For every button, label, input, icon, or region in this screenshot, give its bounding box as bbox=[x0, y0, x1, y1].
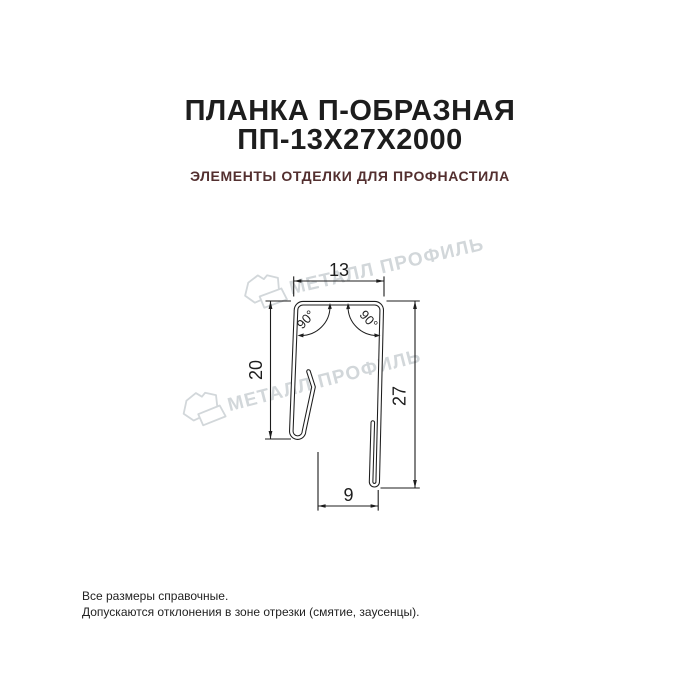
dimension-label-top-width: 13 bbox=[329, 260, 349, 280]
arc-arrow-side bbox=[298, 333, 304, 337]
watermark-top: МЕТАЛЛ ПРОФИЛЬ bbox=[241, 224, 486, 311]
angle-annotation-right: 90° bbox=[346, 303, 381, 337]
dimension-label-right-height: 27 bbox=[390, 386, 410, 406]
footer-notes: Все размеры справочные. Допускаются откл… bbox=[82, 588, 419, 620]
watermark-middle: МЕТАЛЛ ПРОФИЛЬ bbox=[179, 336, 424, 429]
page: ПЛАНКА П-ОБРАЗНАЯ ПП-13Х27Х2000 ЭЛЕМЕНТЫ… bbox=[0, 0, 700, 700]
dimension-label-bottom-width: 9 bbox=[343, 485, 353, 505]
arrow-down bbox=[413, 480, 417, 488]
watermark-text: МЕТАЛЛ ПРОФИЛЬ bbox=[287, 234, 486, 299]
dimension-label-left-height: 20 bbox=[246, 360, 266, 380]
crystal-logo-icon bbox=[241, 270, 287, 311]
arrow-down bbox=[269, 431, 273, 439]
footer-note-2: Допускаются отклонения в зоне отрезки (с… bbox=[82, 604, 419, 620]
dimension-lines bbox=[265, 301, 291, 439]
arrow-right bbox=[376, 279, 384, 283]
angle-annotation-left: 90° bbox=[294, 303, 332, 337]
arrow-right bbox=[371, 504, 379, 508]
arrow-left bbox=[318, 504, 326, 508]
angle-label-right: 90° bbox=[357, 307, 381, 332]
dimension-left-height: 20 bbox=[246, 301, 291, 439]
footer-note-1: Все размеры справочные. bbox=[82, 588, 419, 604]
crystal-logo-icon bbox=[179, 387, 226, 429]
dimension-right-height: 27 bbox=[381, 301, 420, 488]
arrow-up bbox=[413, 301, 417, 309]
